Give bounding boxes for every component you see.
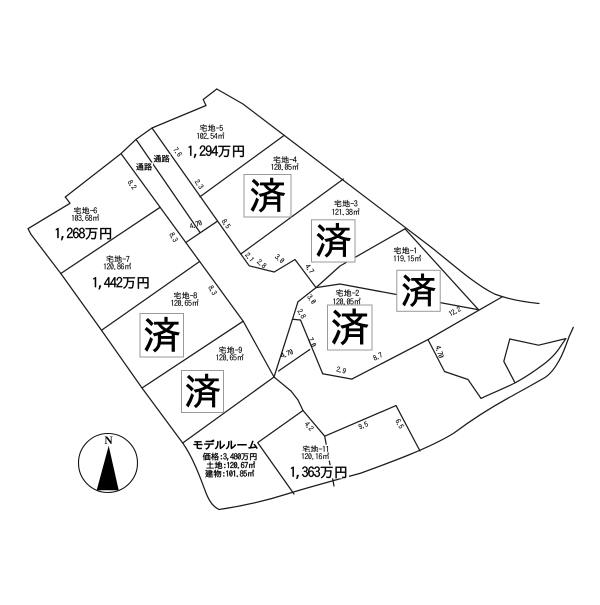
svg-text:N: N [104,435,113,447]
